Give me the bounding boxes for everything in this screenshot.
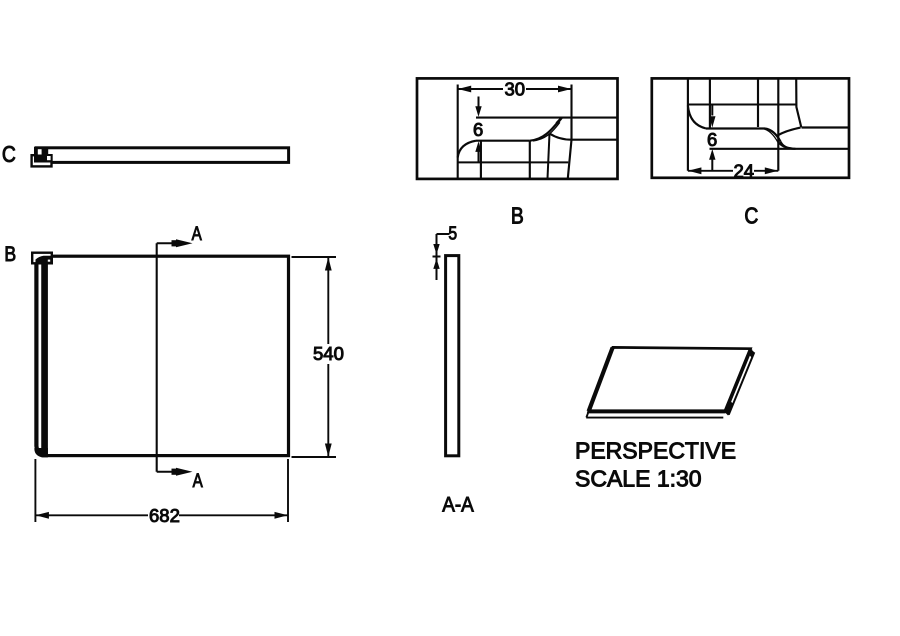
svg-text:PERSPECTIVE: PERSPECTIVE [575, 438, 736, 464]
svg-text:6: 6 [707, 129, 717, 150]
svg-text:5: 5 [448, 222, 457, 244]
svg-text:SCALE 1:30: SCALE 1:30 [575, 466, 702, 492]
svg-text:6: 6 [473, 119, 483, 140]
svg-text:B: B [4, 242, 16, 266]
svg-text:C: C [744, 204, 758, 229]
svg-text:B: B [511, 204, 524, 229]
svg-text:30: 30 [505, 79, 526, 100]
svg-text:A: A [192, 223, 203, 245]
svg-text:682: 682 [149, 505, 180, 526]
svg-text:24: 24 [734, 161, 755, 182]
svg-text:540: 540 [313, 343, 344, 364]
svg-text:A-A: A-A [442, 493, 474, 516]
svg-text:A: A [193, 469, 204, 491]
svg-text:C: C [2, 143, 16, 168]
